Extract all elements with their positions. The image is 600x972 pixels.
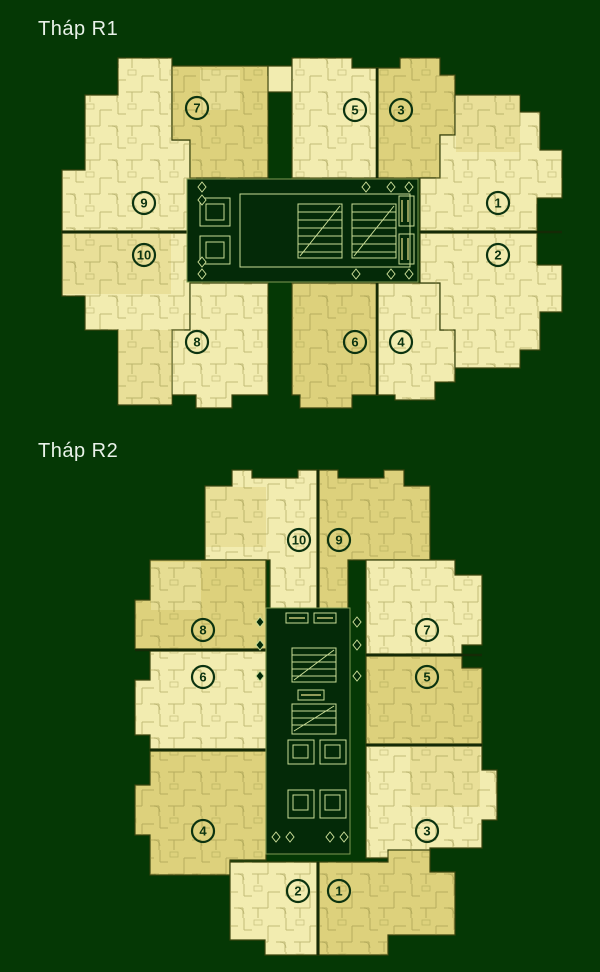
floorplan-stage: Tháp R1 Tháp R2 — [0, 0, 600, 972]
svg-text:2: 2 — [294, 884, 301, 899]
svg-text:8: 8 — [193, 335, 200, 350]
svg-text:1: 1 — [494, 196, 501, 211]
svg-text:3: 3 — [423, 824, 430, 839]
svg-text:6: 6 — [351, 335, 358, 350]
plan-r2: 10 9 8 7 6 5 4 — [135, 470, 497, 955]
svg-text:1: 1 — [335, 884, 342, 899]
svg-text:9: 9 — [335, 533, 342, 548]
svg-text:7: 7 — [193, 101, 200, 116]
svg-text:8: 8 — [199, 623, 206, 638]
link-block-r1 — [268, 66, 292, 92]
svg-text:6: 6 — [199, 670, 206, 685]
plan-r1: 7 5 3 9 1 10 2 — [62, 58, 562, 408]
svg-text:5: 5 — [351, 103, 358, 118]
svg-text:7: 7 — [423, 623, 430, 638]
svg-text:5: 5 — [423, 670, 430, 685]
core-r1 — [187, 179, 418, 282]
svg-text:10: 10 — [292, 533, 306, 548]
core-outline — [266, 608, 350, 854]
floorplan-canvas: 7 5 3 9 1 10 2 — [0, 0, 600, 972]
svg-text:9: 9 — [140, 196, 147, 211]
svg-text:4: 4 — [397, 335, 405, 350]
core-r2 — [256, 608, 361, 854]
svg-text:2: 2 — [494, 248, 501, 263]
svg-text:3: 3 — [397, 103, 404, 118]
svg-text:4: 4 — [199, 824, 207, 839]
svg-text:10: 10 — [137, 248, 151, 263]
page: { "plans": { "r1": { "title": "Tháp R1",… — [0, 0, 600, 972]
